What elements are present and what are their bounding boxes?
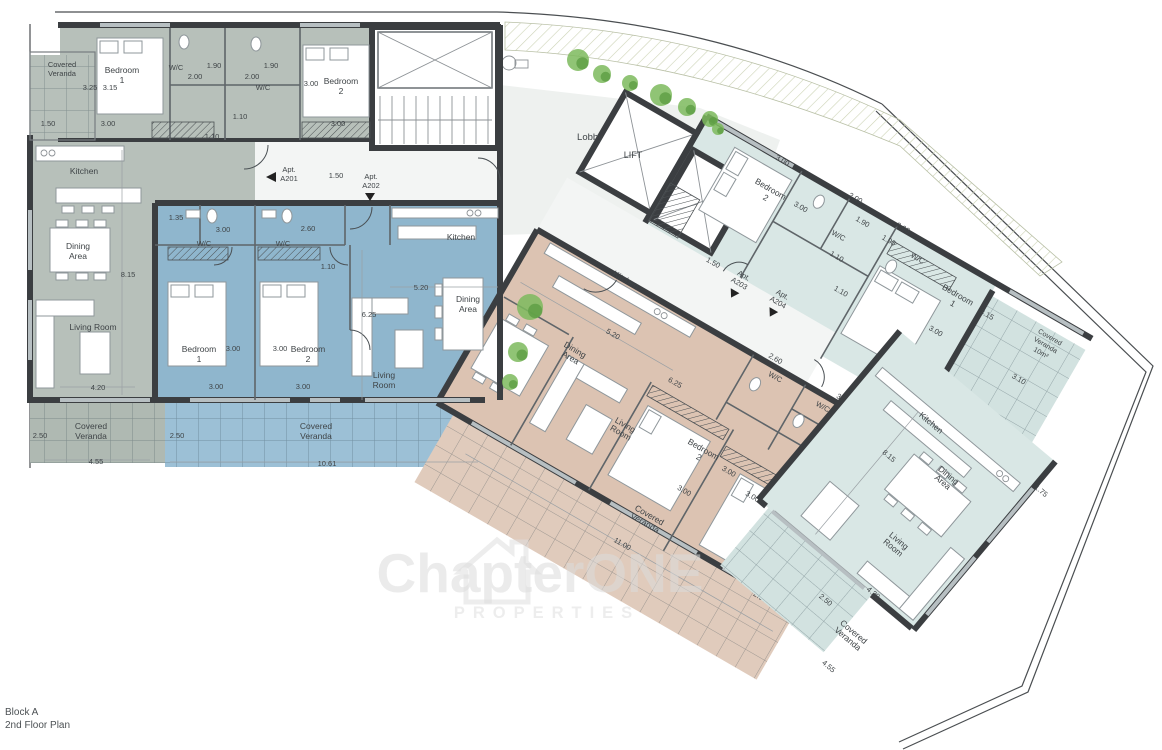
floor-plan-svg: 3.00Bedroom23.002.001.90W/C1.902.00W/CBe… bbox=[0, 0, 1162, 750]
plan-label: Area bbox=[69, 251, 87, 261]
wardrobe bbox=[168, 247, 228, 260]
plan-label: 2.00 bbox=[188, 72, 203, 81]
plan-label: 10.61 bbox=[318, 459, 337, 468]
plan-label: W/C bbox=[197, 239, 212, 248]
plan-label: A201 bbox=[280, 174, 298, 183]
plan-label: A202 bbox=[362, 181, 380, 190]
plan-label: 1.10 bbox=[205, 132, 220, 141]
plan-label: Living bbox=[373, 370, 395, 380]
plan-label: 2.60 bbox=[301, 224, 316, 233]
plan-label: 2.50 bbox=[170, 431, 185, 440]
plant-icon bbox=[622, 75, 638, 91]
plan-label: Bedroom bbox=[182, 344, 217, 354]
plan-label: 2 bbox=[339, 86, 344, 96]
plan-label: 6.25 bbox=[362, 310, 377, 319]
plant-icon bbox=[650, 84, 672, 106]
plan-label: Kitchen bbox=[70, 166, 99, 176]
plan-label: 4.55 bbox=[89, 457, 104, 466]
plant-icon bbox=[567, 49, 589, 71]
plant-icon bbox=[517, 294, 543, 320]
sink-icon bbox=[262, 210, 276, 218]
plan-label: 1.10 bbox=[321, 262, 336, 271]
plan-label: Living Room bbox=[69, 322, 116, 332]
title-block: Block A 2nd Floor Plan bbox=[5, 706, 70, 732]
plan-label: 1.90 bbox=[207, 61, 222, 70]
plan-label: Kitchen bbox=[447, 232, 476, 242]
plan-label: Bedroom bbox=[291, 344, 326, 354]
sink-icon bbox=[186, 210, 200, 218]
plan-label: 3.00 bbox=[304, 79, 319, 88]
plan-label: 2 bbox=[306, 354, 311, 364]
plan-label: Dining bbox=[456, 294, 480, 304]
plan-label: 8.15 bbox=[121, 270, 136, 279]
plan-label: 3.00 bbox=[216, 225, 231, 234]
plan-label: Bedroom bbox=[324, 76, 359, 86]
toilet-icon bbox=[179, 35, 189, 49]
plan-label: 5.20 bbox=[414, 283, 429, 292]
plan-label: W/C bbox=[256, 83, 271, 92]
plan-label: 3.00 bbox=[101, 119, 116, 128]
plan-label: 1 bbox=[120, 75, 125, 85]
plan-label: Bedroom bbox=[105, 65, 140, 75]
plan-label: Area bbox=[459, 304, 477, 314]
plan-label: 1.90 bbox=[264, 61, 279, 70]
plan-label: 4.20 bbox=[91, 383, 106, 392]
plan-label: W/C bbox=[276, 239, 291, 248]
plan-label: 1.10 bbox=[233, 112, 248, 121]
plan-label: 3.00 bbox=[331, 119, 346, 128]
plan-label: Covered bbox=[48, 60, 76, 69]
plant-icon bbox=[502, 374, 518, 390]
plan-label: Dining bbox=[66, 241, 90, 251]
plan-label: 1.50 bbox=[329, 171, 344, 180]
plan-label: 3.15 bbox=[103, 83, 118, 92]
plan-label: PROPERTIES bbox=[454, 604, 640, 622]
plan-label: Apt. bbox=[282, 165, 295, 174]
plan-label: Covered bbox=[75, 421, 107, 431]
plan-label: 3.00 bbox=[273, 344, 288, 353]
plan-label: 1 bbox=[197, 354, 202, 364]
plan-label: Apt. bbox=[364, 172, 377, 181]
plant-icon bbox=[678, 98, 696, 116]
plan-label: Veranda bbox=[48, 69, 77, 78]
plan-label: Veranda bbox=[300, 431, 332, 441]
plan-label: 3.00 bbox=[209, 382, 224, 391]
plan-label: Lobby bbox=[577, 132, 603, 143]
plan-label: 1.35 bbox=[169, 213, 184, 222]
plan-label: 3.00 bbox=[226, 344, 241, 353]
toilet-icon bbox=[207, 209, 217, 223]
plant-icon bbox=[508, 342, 528, 362]
plan-label: 2.50 bbox=[33, 431, 48, 440]
wardrobe bbox=[258, 247, 320, 260]
plan-label: LIFT bbox=[624, 150, 643, 160]
plan-label: Covered bbox=[300, 421, 332, 431]
toilet-icon bbox=[251, 37, 261, 51]
block-title: Block A bbox=[5, 706, 70, 719]
plan-label: Room bbox=[373, 380, 396, 390]
plan-label: Veranda bbox=[75, 431, 107, 441]
plan-label: W/C bbox=[169, 63, 184, 72]
floor-title: 2nd Floor Plan bbox=[5, 719, 70, 732]
plan-label: 2.00 bbox=[245, 72, 260, 81]
plan-label: 1.50 bbox=[41, 119, 56, 128]
toilet-icon bbox=[282, 209, 292, 223]
floor-plan-page: 3.00Bedroom23.002.001.90W/C1.902.00W/CBe… bbox=[0, 0, 1162, 750]
plant-icon bbox=[593, 65, 611, 83]
plan-label: 3.25 bbox=[83, 83, 98, 92]
plan-label: 3.00 bbox=[296, 382, 311, 391]
plant-icon bbox=[712, 123, 724, 135]
